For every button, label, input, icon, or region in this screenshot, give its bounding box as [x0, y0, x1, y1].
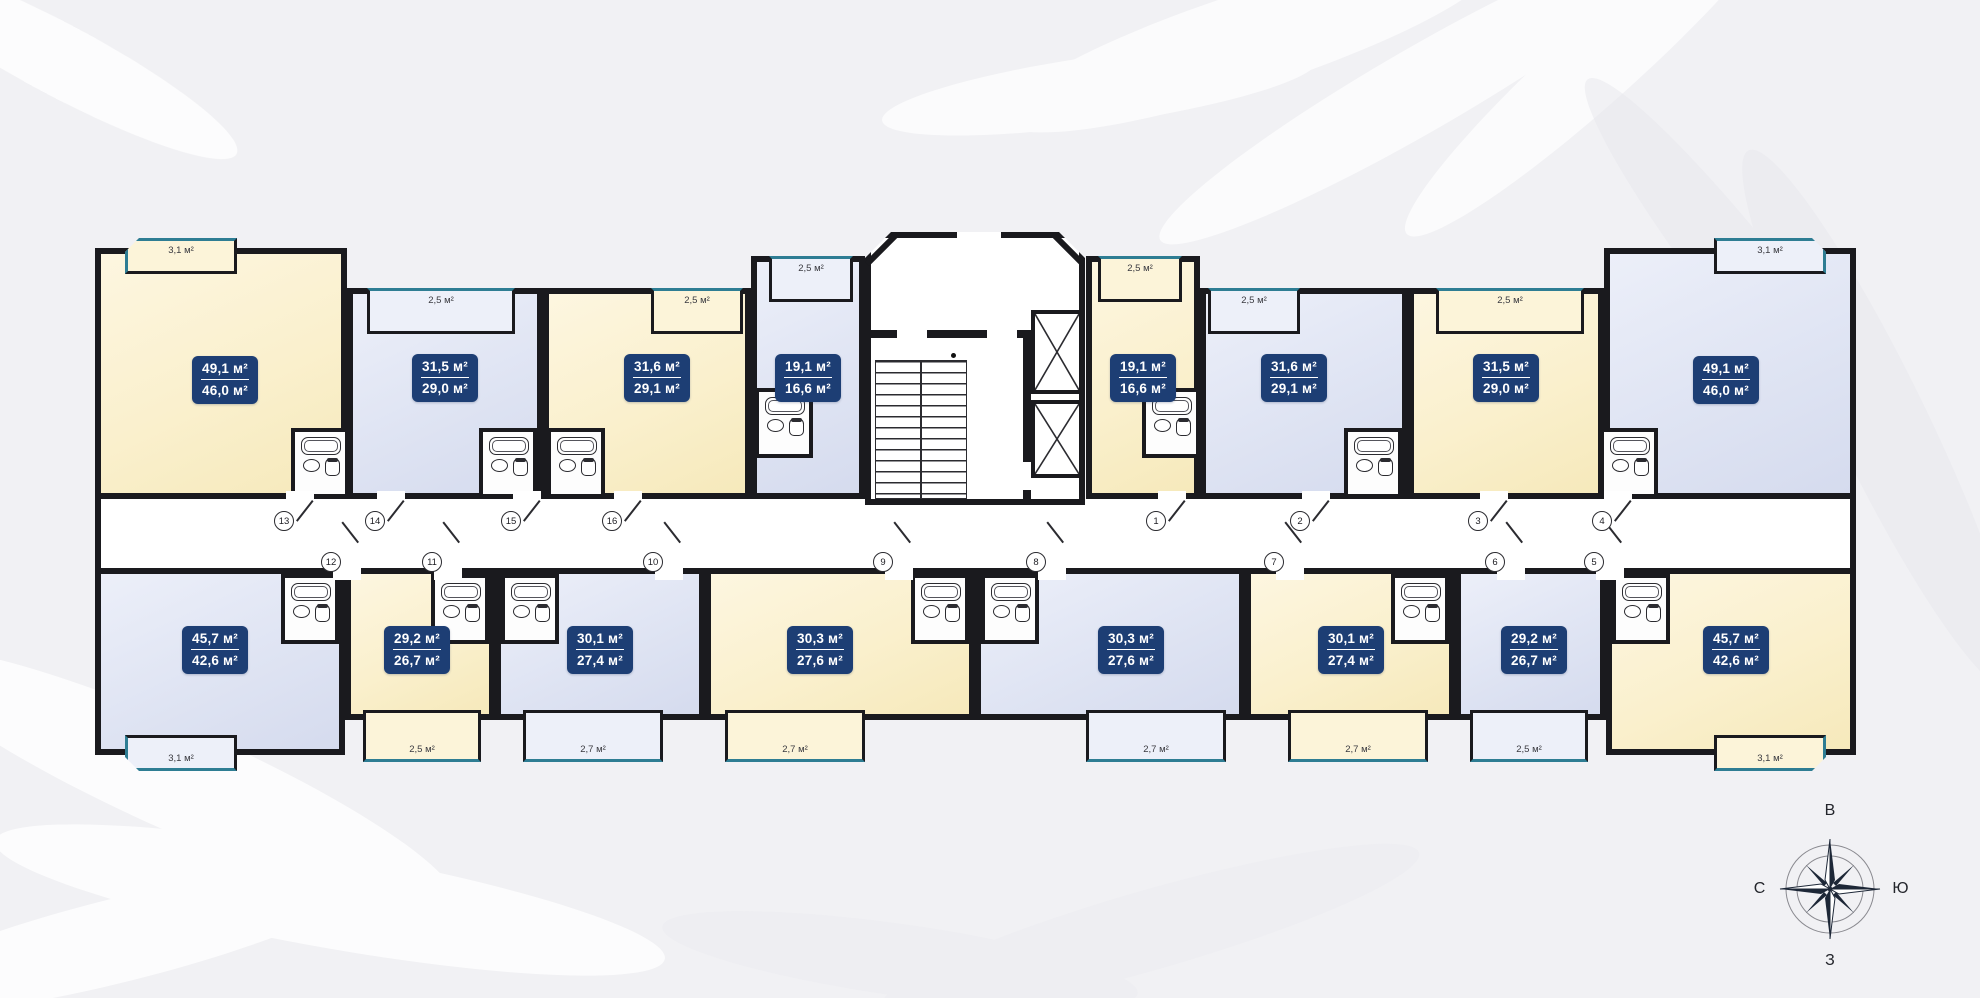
sink-icon	[1624, 605, 1641, 618]
sink-icon	[1154, 419, 1171, 432]
living-area-value: 16,6 м²	[784, 377, 832, 396]
sink-icon	[491, 459, 508, 472]
elevator-shaft	[1031, 310, 1083, 394]
toilet-icon	[535, 604, 550, 622]
balcony: 2,5 м²	[1098, 256, 1182, 302]
apartment-number-badge: 9	[873, 552, 893, 572]
total-area-value: 45,7 м²	[191, 631, 239, 649]
balcony-area-label: 2,5 м²	[1127, 259, 1153, 278]
elevator-shaft	[1031, 400, 1083, 478]
door-opening	[1302, 491, 1330, 509]
toilet-icon	[945, 604, 960, 622]
living-area-value: 27,4 м²	[576, 649, 624, 668]
living-area-value: 42,6 м²	[191, 649, 239, 668]
bathtub-icon	[1401, 583, 1441, 601]
bathtub-icon	[1354, 437, 1394, 455]
apartment-number-badge: 8	[1026, 552, 1046, 572]
apartment-area-badge[interactable]: 31,6 м²29,1 м²	[1261, 354, 1327, 402]
stair-column	[951, 353, 956, 358]
bathtub-icon	[511, 583, 551, 601]
door-opening	[377, 491, 405, 509]
balcony: 2,5 м²	[1470, 710, 1588, 762]
bathroom	[1600, 428, 1658, 498]
total-area-value: 31,6 м²	[1270, 359, 1318, 377]
toilet-icon	[465, 604, 480, 622]
total-area-value: 49,1 м²	[201, 361, 249, 379]
balcony-area-label: 2,7 м²	[580, 740, 606, 759]
living-area-value: 29,0 м²	[1482, 377, 1530, 396]
total-area-value: 29,2 м²	[1510, 631, 1558, 649]
bathroom	[1344, 428, 1402, 498]
total-area-value: 30,1 м²	[1327, 631, 1375, 649]
apartment-number-badge: 5	[1584, 552, 1604, 572]
living-area-value: 27,6 м²	[796, 649, 844, 668]
balcony-area-label: 3,1 м²	[1757, 241, 1783, 260]
stair-divider	[920, 361, 922, 498]
sink-icon	[1356, 459, 1373, 472]
sink-icon	[303, 459, 320, 472]
bathroom	[1612, 574, 1670, 644]
apartment-area-badge[interactable]: 30,3 м²27,6 м²	[1098, 626, 1164, 674]
bathtub-icon	[557, 437, 597, 455]
balcony-area-label: 3,1 м²	[168, 749, 194, 768]
apartment-area-badge[interactable]: 45,7 м²42,6 м²	[182, 626, 248, 674]
bathroom	[1391, 574, 1449, 644]
living-area-value: 29,1 м²	[633, 377, 681, 396]
apartment-area-badge[interactable]: 19,1 м²16,6 м²	[775, 354, 841, 402]
door-opening	[614, 491, 642, 509]
apartment-number-badge: 3	[1468, 511, 1488, 531]
bathroom	[981, 574, 1039, 644]
apartment-area-badge[interactable]: 30,1 м²27,4 м²	[567, 626, 633, 674]
balcony: 3,1 м²	[125, 735, 237, 771]
total-area-value: 30,3 м²	[796, 631, 844, 649]
total-area-value: 30,3 м²	[1107, 631, 1155, 649]
toilet-icon	[581, 458, 596, 476]
toilet-icon	[513, 458, 528, 476]
toilet-icon	[1646, 604, 1661, 622]
total-area-value: 19,1 м²	[1119, 359, 1167, 377]
door-opening	[1480, 491, 1508, 509]
apartment-area-badge[interactable]: 49,1 м²46,0 м²	[1693, 356, 1759, 404]
core-chamfer-right	[1051, 232, 1085, 266]
apartment-number-badge: 16	[602, 511, 622, 531]
core-chamfer-left	[865, 232, 899, 266]
living-area-value: 27,4 м²	[1327, 649, 1375, 668]
balcony: 2,7 м²	[523, 710, 663, 762]
sink-icon	[923, 605, 940, 618]
balcony-area-label: 2,5 м²	[684, 291, 710, 310]
balcony-area-label: 2,5 м²	[1516, 740, 1542, 759]
bathtub-icon	[1622, 583, 1662, 601]
bathroom	[911, 574, 969, 644]
apartment-number-badge: 14	[365, 511, 385, 531]
balcony-area-label: 2,5 м²	[798, 259, 824, 278]
total-area-value: 45,7 м²	[1712, 631, 1760, 649]
total-area-value: 31,5 м²	[421, 359, 469, 377]
apartment-area-badge[interactable]: 30,1 м²27,4 м²	[1318, 626, 1384, 674]
total-area-value: 49,1 м²	[1702, 361, 1750, 379]
compass-rose: В Ю З С	[1755, 808, 1905, 963]
sink-icon	[993, 605, 1010, 618]
toilet-icon	[1378, 458, 1393, 476]
sink-icon	[767, 419, 784, 432]
sink-icon	[443, 605, 460, 618]
door-opening	[286, 491, 314, 509]
balcony: 2,5 м²	[769, 256, 853, 302]
toilet-icon	[1425, 604, 1440, 622]
living-area-value: 42,6 м²	[1712, 649, 1760, 668]
floor-plan-page: 3,1 м²49,1 м²46,0 м²132,5 м²31,5 м²29,0 …	[0, 0, 1980, 998]
compass-north-label: С	[1754, 880, 1766, 898]
door-opening	[1604, 491, 1632, 509]
stair-elevator-core	[865, 232, 1085, 505]
living-area-value: 29,1 м²	[1270, 377, 1318, 396]
toilet-icon	[315, 604, 330, 622]
total-area-value: 31,6 м²	[633, 359, 681, 377]
sink-icon	[293, 605, 310, 618]
living-area-value: 46,0 м²	[201, 379, 249, 398]
compass-star-icon	[1778, 837, 1882, 941]
bathtub-icon	[489, 437, 529, 455]
balcony-area-label: 2,7 м²	[1345, 740, 1371, 759]
apartment-number-badge: 10	[643, 552, 663, 572]
apartment-number-badge: 13	[274, 511, 294, 531]
bathtub-icon	[301, 437, 341, 455]
bathroom	[547, 428, 605, 498]
bathtub-icon	[991, 583, 1031, 601]
apartment-number-badge: 7	[1264, 552, 1284, 572]
vestibule-door-opening	[897, 330, 927, 338]
apartment-area-badge[interactable]: 30,3 м²27,6 м²	[787, 626, 853, 674]
sink-icon	[559, 459, 576, 472]
bathtub-icon	[291, 583, 331, 601]
total-area-value: 29,2 м²	[393, 631, 441, 649]
toilet-icon	[789, 418, 804, 436]
apartment-number-badge: 12	[321, 552, 341, 572]
balcony: 2,5 м²	[1208, 288, 1300, 334]
balcony: 3,1 м²	[125, 238, 237, 274]
living-area-value: 27,6 м²	[1107, 649, 1155, 668]
toilet-icon	[1176, 418, 1191, 436]
bathroom	[281, 574, 339, 644]
balcony: 2,5 м²	[651, 288, 743, 334]
apartment-area-badge[interactable]: 49,1 м²46,0 м²	[192, 356, 258, 404]
toilet-icon	[1015, 604, 1030, 622]
living-area-value: 46,0 м²	[1702, 379, 1750, 398]
apartment-area-badge[interactable]: 45,7 м²42,6 м²	[1703, 626, 1769, 674]
balcony: 2,7 м²	[725, 710, 865, 762]
compass-east-label: В	[1825, 802, 1836, 820]
sink-icon	[1612, 459, 1629, 472]
compass-west-label: З	[1825, 952, 1835, 970]
total-area-value: 19,1 м²	[784, 359, 832, 377]
balcony-area-label: 3,1 м²	[168, 241, 194, 260]
sink-icon	[1403, 605, 1420, 618]
balcony: 2,7 м²	[1086, 710, 1226, 762]
building-entrance-opening	[957, 232, 1001, 240]
balcony-area-label: 2,5 м²	[1241, 291, 1267, 310]
bathroom	[501, 574, 559, 644]
floor-plan: 3,1 м²49,1 м²46,0 м²132,5 м²31,5 м²29,0 …	[95, 232, 1856, 792]
apartment-number-badge: 6	[1485, 552, 1505, 572]
bathroom	[291, 428, 349, 498]
toilet-icon	[325, 458, 340, 476]
apartment-area-badge[interactable]: 19,1 м²16,6 м²	[1110, 354, 1176, 402]
balcony-area-label: 2,5 м²	[428, 291, 454, 310]
lobby-door-opening	[1023, 462, 1031, 490]
apartment-number-badge: 11	[422, 552, 442, 572]
apartment-area-badge[interactable]: 31,5 м²29,0 м²	[412, 354, 478, 402]
total-area-value: 31,5 м²	[1482, 359, 1530, 377]
apartment-area-badge[interactable]: 31,6 м²29,1 м²	[624, 354, 690, 402]
living-area-value: 26,7 м²	[393, 649, 441, 668]
apartment-area-badge[interactable]: 29,2 м²26,7 м²	[1501, 626, 1567, 674]
balcony-area-label: 3,1 м²	[1757, 749, 1783, 768]
bathtub-icon	[441, 583, 481, 601]
bathtub-icon	[1610, 437, 1650, 455]
living-area-value: 16,6 м²	[1119, 377, 1167, 396]
balcony-area-label: 2,7 м²	[1143, 740, 1169, 759]
compass-south-label: Ю	[1892, 880, 1908, 898]
balcony: 3,1 м²	[1714, 735, 1826, 771]
balcony: 2,5 м²	[367, 288, 515, 334]
total-area-value: 30,1 м²	[576, 631, 624, 649]
apartment-number-badge: 2	[1290, 511, 1310, 531]
balcony: 2,7 м²	[1288, 710, 1428, 762]
balcony: 2,5 м²	[1436, 288, 1584, 334]
balcony-area-label: 2,5 м²	[409, 740, 435, 759]
balcony: 3,1 м²	[1714, 238, 1826, 274]
sink-icon	[513, 605, 530, 618]
staircase	[875, 360, 967, 499]
living-area-value: 29,0 м²	[421, 377, 469, 396]
toilet-icon	[1634, 458, 1649, 476]
apartment-number-badge: 15	[501, 511, 521, 531]
balcony-area-label: 2,7 м²	[782, 740, 808, 759]
door-opening	[513, 491, 541, 509]
door-opening	[1158, 491, 1186, 509]
apartment-area-badge[interactable]: 29,2 м²26,7 м²	[384, 626, 450, 674]
living-area-value: 26,7 м²	[1510, 649, 1558, 668]
vestibule-door-opening	[987, 330, 1017, 338]
bathtub-icon	[921, 583, 961, 601]
bathroom	[479, 428, 537, 498]
balcony-area-label: 2,5 м²	[1497, 291, 1523, 310]
apartment-area-badge[interactable]: 31,5 м²29,0 м²	[1473, 354, 1539, 402]
balcony: 2,5 м²	[363, 710, 481, 762]
apartment-number-badge: 4	[1592, 511, 1612, 531]
apartment-number-badge: 1	[1146, 511, 1166, 531]
